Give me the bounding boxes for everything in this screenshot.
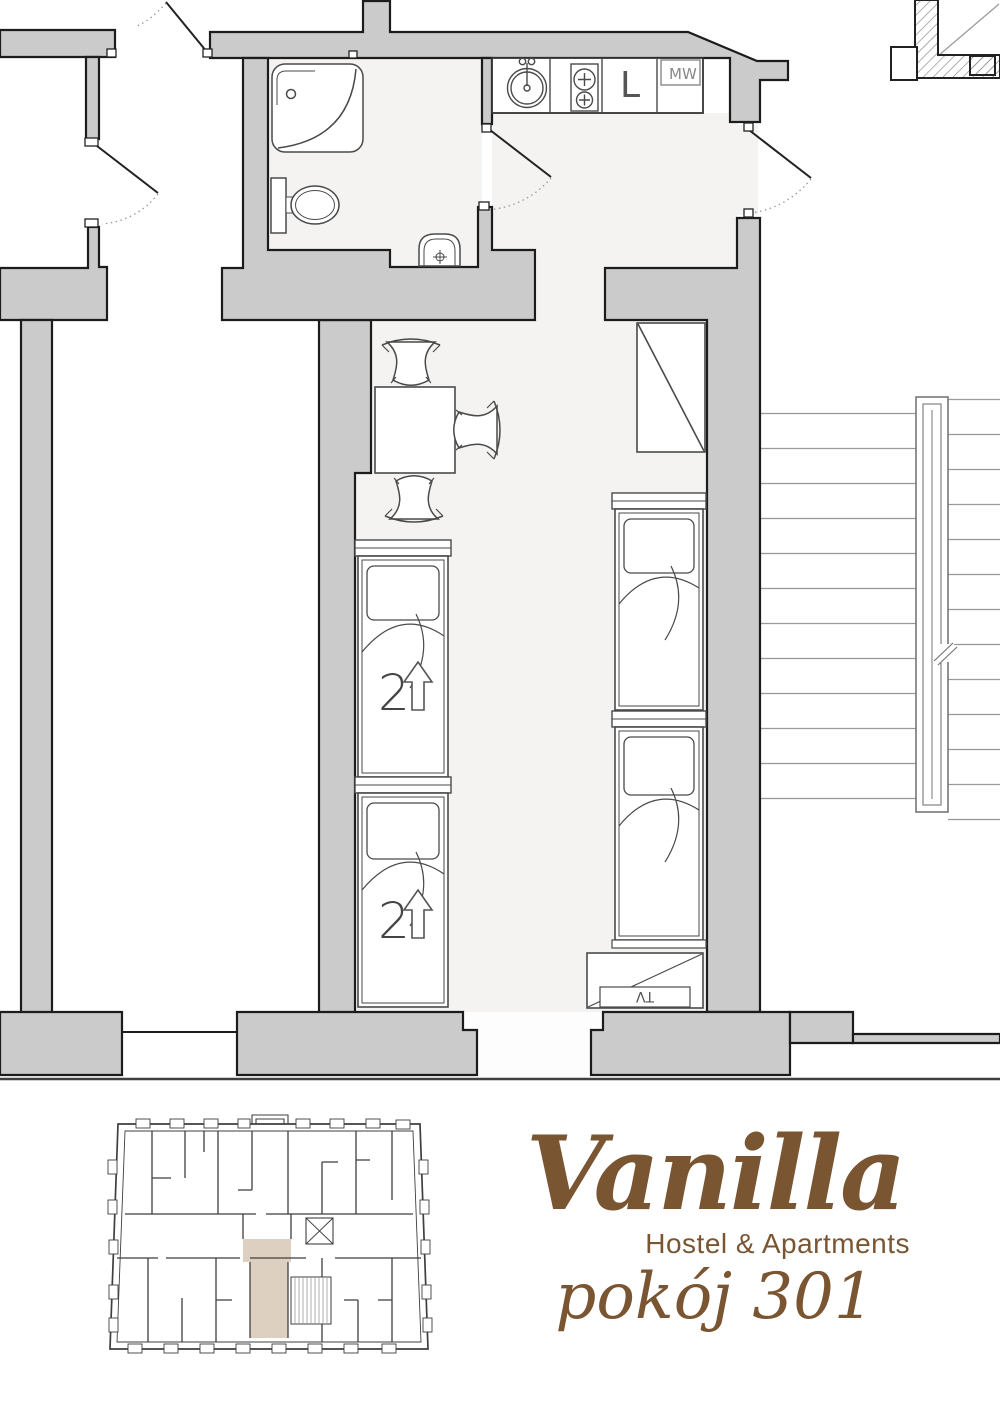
toilet-bowl [291, 186, 339, 224]
bed-pillow [624, 519, 694, 573]
stair-section-line [938, 4, 999, 56]
minimap-top-bay [252, 1115, 288, 1124]
bed-pillow [367, 803, 439, 859]
bunk-2-capacity: 2 [378, 892, 410, 950]
wall-left-lower [0, 227, 107, 320]
door-hinge [349, 51, 357, 58]
staircase [761, 0, 1000, 821]
floor-plan-drawing: L MW [0, 0, 1000, 1414]
building-minimap [108, 1115, 432, 1353]
bunk-bed-1 [355, 540, 451, 777]
bed-pillow [367, 566, 439, 620]
toilet-tank [271, 178, 286, 233]
door-hinge [107, 49, 116, 57]
bunk-1-capacity: 2 [378, 664, 410, 722]
door-hinge [479, 202, 489, 210]
door-hinge [744, 209, 753, 217]
kitchenette: L MW [492, 58, 703, 113]
stair-flight-left [761, 400, 916, 800]
wall-bottom-center [237, 1012, 477, 1075]
wall-bottom-right [591, 1012, 790, 1075]
floor-plan-page: L MW [0, 0, 1000, 1414]
bed-pillow [624, 737, 694, 795]
neighbor-door-leaf [97, 146, 158, 193]
wall-bathroom-divider [482, 58, 492, 124]
shower-icon [272, 64, 363, 152]
bed-foot-rail [612, 940, 706, 948]
wall-left-vertical [21, 320, 52, 1013]
single-bed-1 [612, 493, 706, 710]
fridge-label: L [620, 65, 640, 106]
wall-bottom-thin-band [853, 1034, 1000, 1043]
door-hinge [482, 124, 491, 132]
entry-door-leaf [749, 130, 811, 178]
south-door-recess [477, 1030, 591, 1078]
chimney-small-hatch [970, 56, 995, 75]
minimap-top-room-walls [152, 1131, 392, 1214]
neighbor-door-swing [102, 194, 158, 224]
wall-bottom-right-step [790, 1012, 853, 1043]
wall-bottom-left [0, 1012, 122, 1075]
stair-flight-right [948, 385, 1000, 821]
wall-left-upper [86, 57, 99, 139]
south-door-opening [463, 1012, 603, 1030]
corridor-door-leaf [166, 2, 207, 52]
door-hinge [85, 219, 98, 227]
chimney-white-box [891, 47, 917, 80]
door-hinge [744, 123, 753, 131]
door-hinge [85, 138, 98, 146]
tv-stand: TV [587, 953, 703, 1008]
single-bed-2 [612, 711, 706, 948]
table [375, 387, 455, 473]
tv-label: TV [635, 988, 655, 1004]
corridor-door-swing [137, 3, 166, 26]
microwave-label: MW [669, 65, 697, 83]
door-hinge [203, 49, 212, 57]
entry-door-swing [751, 179, 811, 213]
entry-door-floor [735, 125, 758, 215]
wall-topleft-band [0, 30, 115, 57]
